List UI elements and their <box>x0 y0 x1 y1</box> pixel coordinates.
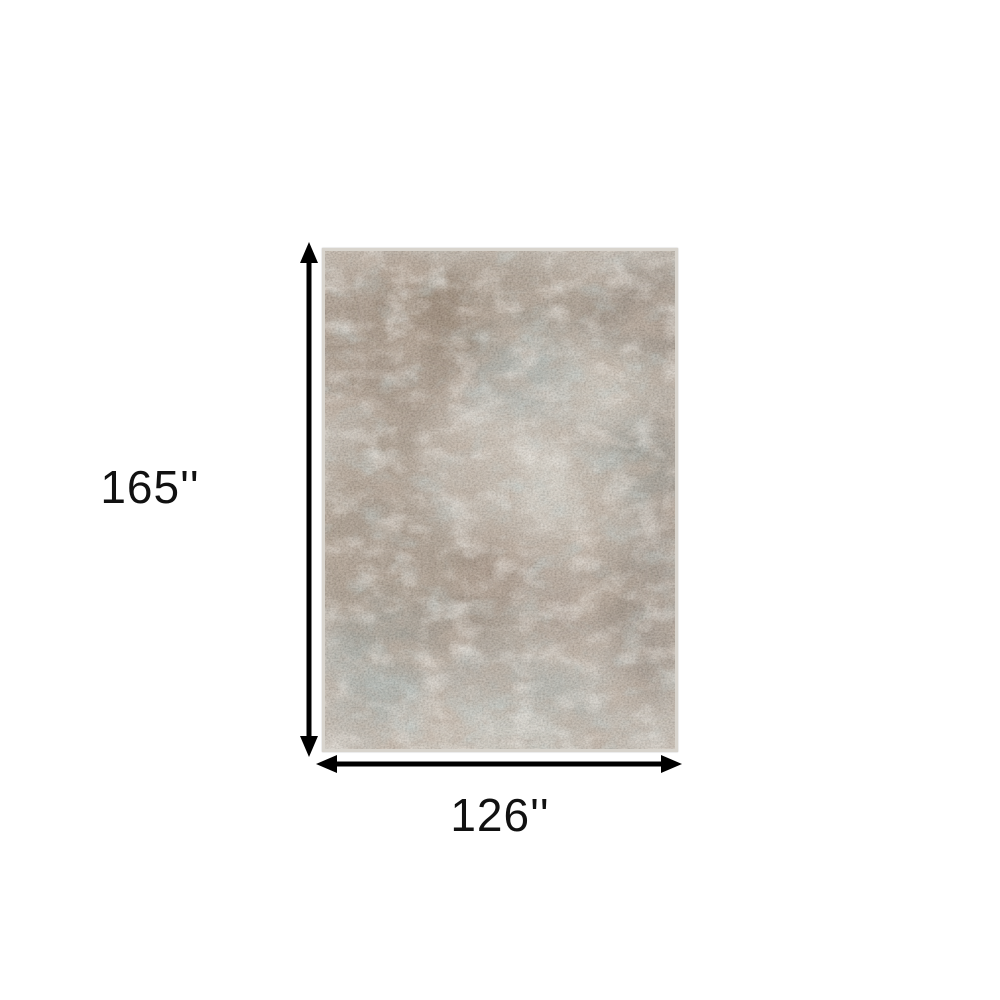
height-dimension-arrow-icon <box>300 242 318 757</box>
width-dimension-arrow-icon <box>316 755 682 773</box>
rug-texture <box>325 251 675 749</box>
rug-image <box>322 248 678 752</box>
width-dimension-label: 126'' <box>450 788 549 842</box>
product-dimension-diagram: 165'' 126'' <box>0 0 1000 1000</box>
height-dimension-label: 165'' <box>100 460 199 514</box>
